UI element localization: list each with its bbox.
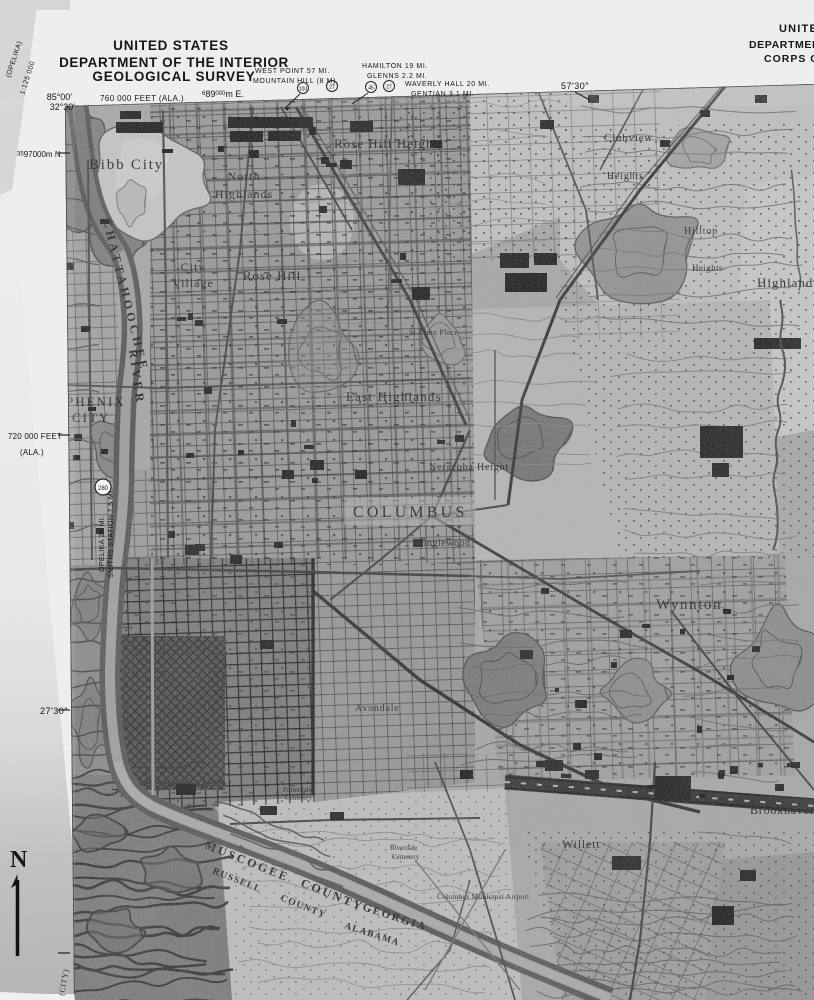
svg-text:3597000m N.: 3597000m N.	[17, 150, 63, 159]
svg-text:CORPS O: CORPS O	[764, 53, 814, 65]
svg-text:45: 45	[368, 86, 374, 92]
svg-text:27: 27	[329, 85, 335, 91]
svg-text:57′30″: 57′30″	[561, 81, 589, 91]
svg-text:GLENNS 2.2 MI.: GLENNS 2.2 MI.	[367, 73, 428, 80]
svg-text:WAVERLY HALL 20 MI.: WAVERLY HALL 20 MI.	[405, 81, 490, 88]
svg-text:760 000 FEET (ALA.): 760 000 FEET (ALA.)	[100, 94, 184, 103]
svg-text:GENTIAN 3.1 MI.: GENTIAN 3.1 MI.	[411, 91, 474, 98]
svg-text:UNITE: UNITE	[779, 23, 814, 35]
svg-text:GEOLOGICAL SURVEY: GEOLOGICAL SURVEY	[92, 69, 255, 84]
svg-text:UNITED STATES: UNITED STATES	[113, 38, 229, 53]
svg-text:(ALA.): (ALA.)	[20, 448, 44, 457]
svg-text:103: 103	[299, 87, 308, 93]
svg-text:32°30′: 32°30′	[50, 102, 76, 112]
svg-text:720 000 FEET: 720 000 FEET	[8, 432, 62, 441]
svg-text:OPELIKA 26 MI.: OPELIKA 26 MI.	[99, 515, 106, 572]
svg-text:280: 280	[98, 486, 109, 492]
svg-text:MOUNTAIN HILL (8 M).: MOUNTAIN HILL (8 M).	[253, 78, 339, 85]
svg-text:27: 27	[386, 85, 392, 91]
svg-text:27′30″: 27′30″	[40, 706, 68, 716]
svg-text:85°00′: 85°00′	[47, 92, 73, 102]
svg-text:SMITHS STATION 7.5 MI.: SMITHS STATION 7.5 MI.	[108, 488, 115, 578]
svg-text:DEPARTMEN: DEPARTMEN	[749, 39, 814, 51]
svg-text:HAMILTON 19 MI.: HAMILTON 19 MI.	[362, 63, 428, 70]
svg-text:WEST POINT 57 MI.: WEST POINT 57 MI.	[255, 68, 330, 75]
svg-text:N: N	[10, 847, 28, 873]
